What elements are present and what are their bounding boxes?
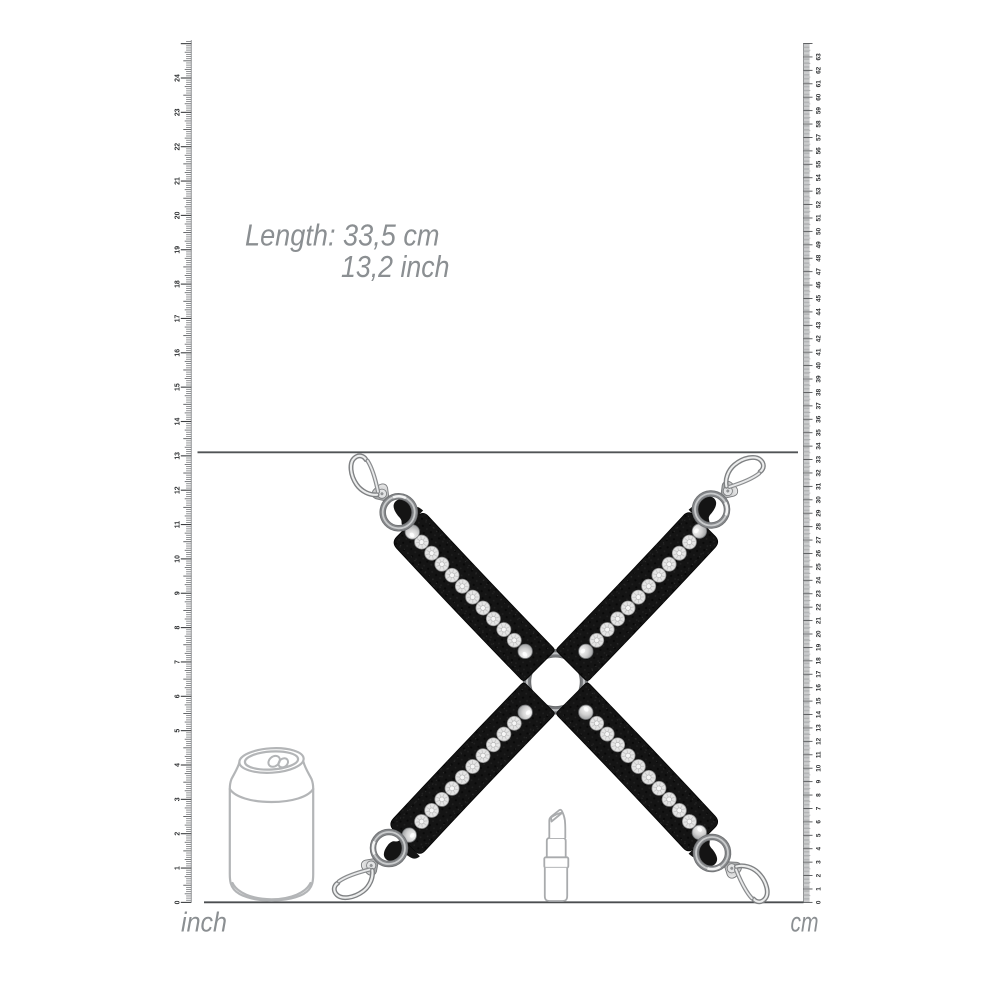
svg-text:1: 1	[174, 866, 181, 870]
svg-text:50: 50	[816, 227, 823, 235]
svg-text:47: 47	[816, 268, 823, 276]
svg-text:24: 24	[174, 74, 181, 82]
svg-text:12: 12	[174, 486, 181, 494]
svg-text:17: 17	[816, 670, 823, 678]
svg-text:9: 9	[174, 591, 181, 595]
svg-text:0: 0	[174, 900, 181, 904]
svg-text:4: 4	[174, 763, 181, 767]
svg-text:29: 29	[816, 509, 823, 517]
svg-text:56: 56	[816, 147, 823, 155]
svg-text:38: 38	[816, 388, 823, 396]
svg-text:6: 6	[816, 820, 823, 824]
svg-text:23: 23	[816, 590, 823, 598]
svg-text:33: 33	[816, 456, 823, 464]
svg-text:45: 45	[816, 295, 823, 303]
svg-text:5: 5	[816, 833, 823, 837]
svg-text:34: 34	[816, 442, 823, 450]
svg-text:52: 52	[816, 201, 823, 209]
svg-text:3: 3	[816, 860, 823, 864]
svg-text:55: 55	[816, 160, 823, 168]
svg-text:27: 27	[816, 536, 823, 544]
svg-text:44: 44	[816, 308, 823, 316]
svg-text:43: 43	[816, 321, 823, 329]
svg-text:39: 39	[816, 375, 823, 383]
svg-text:19: 19	[816, 643, 823, 651]
svg-text:58: 58	[816, 120, 823, 128]
svg-text:22: 22	[174, 143, 181, 151]
svg-text:41: 41	[816, 348, 823, 356]
svg-text:24: 24	[816, 576, 823, 584]
svg-text:42: 42	[816, 335, 823, 343]
svg-text:9: 9	[816, 779, 823, 783]
svg-text:49: 49	[816, 241, 823, 249]
svg-text:13: 13	[174, 452, 181, 460]
svg-text:22: 22	[816, 603, 823, 611]
svg-text:57: 57	[816, 133, 823, 141]
svg-text:20: 20	[174, 211, 181, 219]
svg-text:21: 21	[816, 617, 823, 625]
svg-text:60: 60	[816, 93, 823, 101]
svg-text:21: 21	[174, 177, 181, 185]
svg-text:15: 15	[816, 697, 823, 705]
svg-text:cm: cm	[791, 907, 819, 938]
svg-text:0: 0	[816, 900, 823, 904]
svg-text:18: 18	[816, 657, 823, 665]
svg-text:26: 26	[816, 549, 823, 557]
svg-text:3: 3	[174, 797, 181, 801]
svg-text:12: 12	[816, 737, 823, 745]
svg-text:4: 4	[816, 847, 823, 851]
svg-text:15: 15	[174, 383, 181, 391]
svg-text:31: 31	[816, 482, 823, 490]
svg-text:inch: inch	[181, 907, 227, 938]
svg-text:48: 48	[816, 254, 823, 262]
svg-text:16: 16	[174, 349, 181, 357]
svg-text:11: 11	[174, 521, 181, 528]
svg-text:18: 18	[174, 280, 181, 288]
svg-text:13,2 inch: 13,2 inch	[341, 250, 450, 284]
svg-text:10: 10	[174, 555, 181, 563]
svg-text:28: 28	[816, 523, 823, 531]
svg-text:13: 13	[816, 724, 823, 732]
svg-text:35: 35	[816, 429, 823, 437]
svg-text:16: 16	[816, 684, 823, 692]
svg-text:53: 53	[816, 187, 823, 195]
svg-text:8: 8	[174, 626, 181, 630]
svg-text:11: 11	[816, 751, 823, 758]
svg-text:59: 59	[816, 107, 823, 115]
svg-text:2: 2	[816, 873, 823, 877]
svg-text:37: 37	[816, 402, 823, 410]
svg-text:5: 5	[174, 729, 181, 733]
svg-text:7: 7	[174, 660, 181, 664]
svg-text:61: 61	[816, 80, 823, 88]
svg-text:32: 32	[816, 469, 823, 477]
svg-text:14: 14	[816, 711, 823, 719]
svg-text:54: 54	[816, 174, 823, 182]
svg-text:25: 25	[816, 563, 823, 571]
svg-text:36: 36	[816, 415, 823, 423]
svg-text:6: 6	[174, 694, 181, 698]
svg-text:63: 63	[816, 53, 823, 61]
svg-text:17: 17	[174, 314, 181, 322]
svg-text:Length: 33,5 cm: Length: 33,5 cm	[245, 218, 440, 252]
svg-text:20: 20	[816, 630, 823, 638]
svg-text:1: 1	[816, 887, 823, 891]
svg-text:19: 19	[174, 246, 181, 254]
svg-text:62: 62	[816, 66, 823, 74]
svg-text:51: 51	[816, 214, 823, 222]
svg-text:2: 2	[174, 832, 181, 836]
svg-text:40: 40	[816, 362, 823, 370]
svg-text:8: 8	[816, 793, 823, 797]
svg-text:23: 23	[174, 108, 181, 116]
svg-text:46: 46	[816, 281, 823, 289]
svg-text:10: 10	[816, 764, 823, 772]
svg-text:7: 7	[816, 806, 823, 810]
svg-text:30: 30	[816, 496, 823, 504]
svg-text:14: 14	[174, 418, 181, 426]
